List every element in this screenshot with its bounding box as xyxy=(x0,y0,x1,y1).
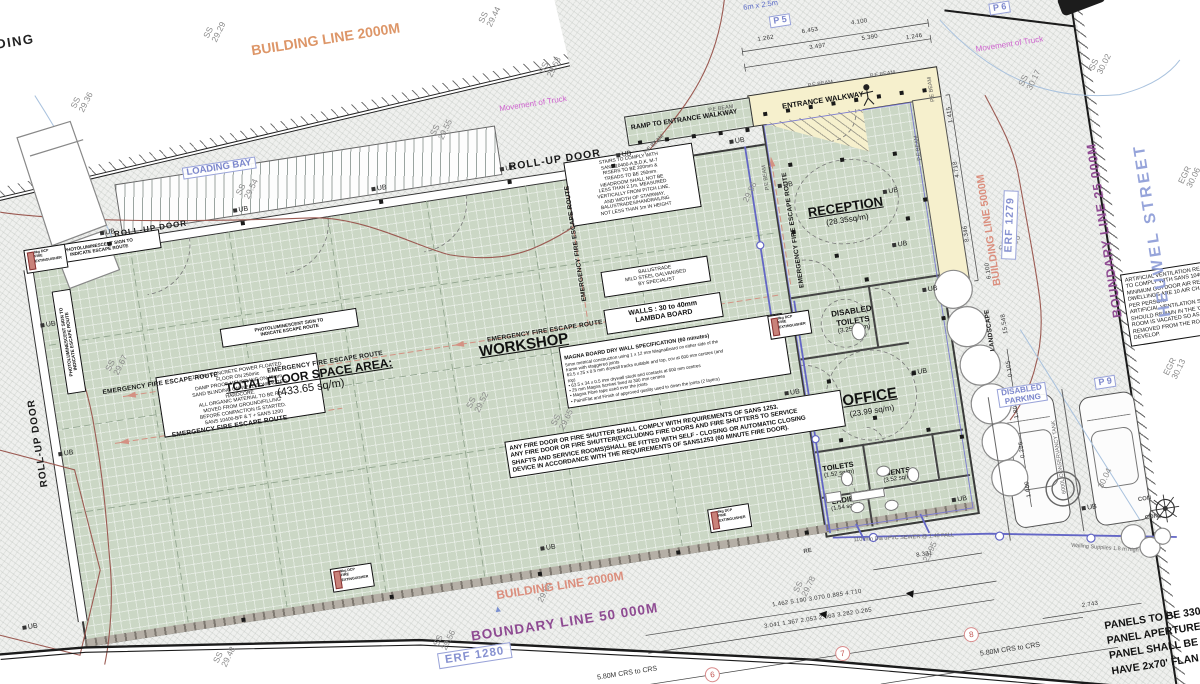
re-label: RE xyxy=(803,548,812,556)
column-dot xyxy=(941,316,946,321)
column-dot xyxy=(899,91,904,96)
column-dot xyxy=(379,200,384,205)
stairs-note-text: STAIRS TO COMPLY WITH SANS 10400-A,B,D,K… xyxy=(597,152,672,217)
column-dot xyxy=(718,131,723,136)
column-dot xyxy=(241,618,246,623)
column-dot xyxy=(788,162,793,167)
column-dot xyxy=(911,371,916,376)
column-dot xyxy=(804,530,809,535)
column-dot xyxy=(665,137,670,142)
site-plan-sheet: STAIRS TO COMPLY WITH SANS 10400-A,B,D,K… xyxy=(0,0,1200,684)
erf-1279: ERF 1279 xyxy=(1001,190,1019,260)
column-dot xyxy=(922,88,927,93)
extinguisher-text: 9kg DCP FIRE EXTINGUISHER xyxy=(777,312,806,329)
column-dot xyxy=(893,151,898,156)
column-dot xyxy=(389,595,394,600)
column-dot xyxy=(107,242,112,247)
column-dot xyxy=(839,438,844,443)
column-dot xyxy=(538,572,543,577)
column-dot xyxy=(831,101,836,106)
column-dot xyxy=(638,140,643,145)
column-dot xyxy=(864,277,869,282)
column-dot xyxy=(906,216,911,221)
datum-marker: ▲ xyxy=(493,604,503,615)
rotated-plan-canvas: STAIRS TO COMPLY WITH SANS 10400-A,B,D,K… xyxy=(0,0,1200,684)
column-dot xyxy=(745,128,750,133)
extinguisher-text: 9kg DCP FIRE EXTINGUISHER xyxy=(340,565,369,582)
column-dot xyxy=(763,112,768,117)
column-dot xyxy=(834,253,839,258)
section-marker: ◀ xyxy=(905,589,914,601)
column-dot xyxy=(692,134,697,139)
column-dot xyxy=(241,221,246,226)
column-dot xyxy=(791,230,796,235)
column-dot xyxy=(507,180,512,185)
extinguisher-text: 9kg DCP FIRE EXTINGUISHER xyxy=(34,246,63,263)
column-dot xyxy=(611,164,616,169)
column-grid xyxy=(36,149,820,637)
section-marker: ◀ xyxy=(818,609,827,621)
column-dot xyxy=(676,550,681,555)
column-dot xyxy=(854,98,859,103)
column-dot xyxy=(827,379,832,384)
column-dot xyxy=(840,158,845,163)
extinguisher-text: 9kg DCP FIRE EXTINGUISHER xyxy=(717,506,746,523)
column-dot xyxy=(877,94,882,99)
column-dot xyxy=(926,427,931,432)
column-dot xyxy=(808,105,813,110)
balustrade-note-text: BALUSTRADE MILD STEEL GALVANISED BY SPEC… xyxy=(625,264,687,287)
column-dot xyxy=(923,197,928,202)
column-dot xyxy=(960,434,965,439)
column-dot xyxy=(873,416,878,421)
column-dot xyxy=(786,108,791,113)
